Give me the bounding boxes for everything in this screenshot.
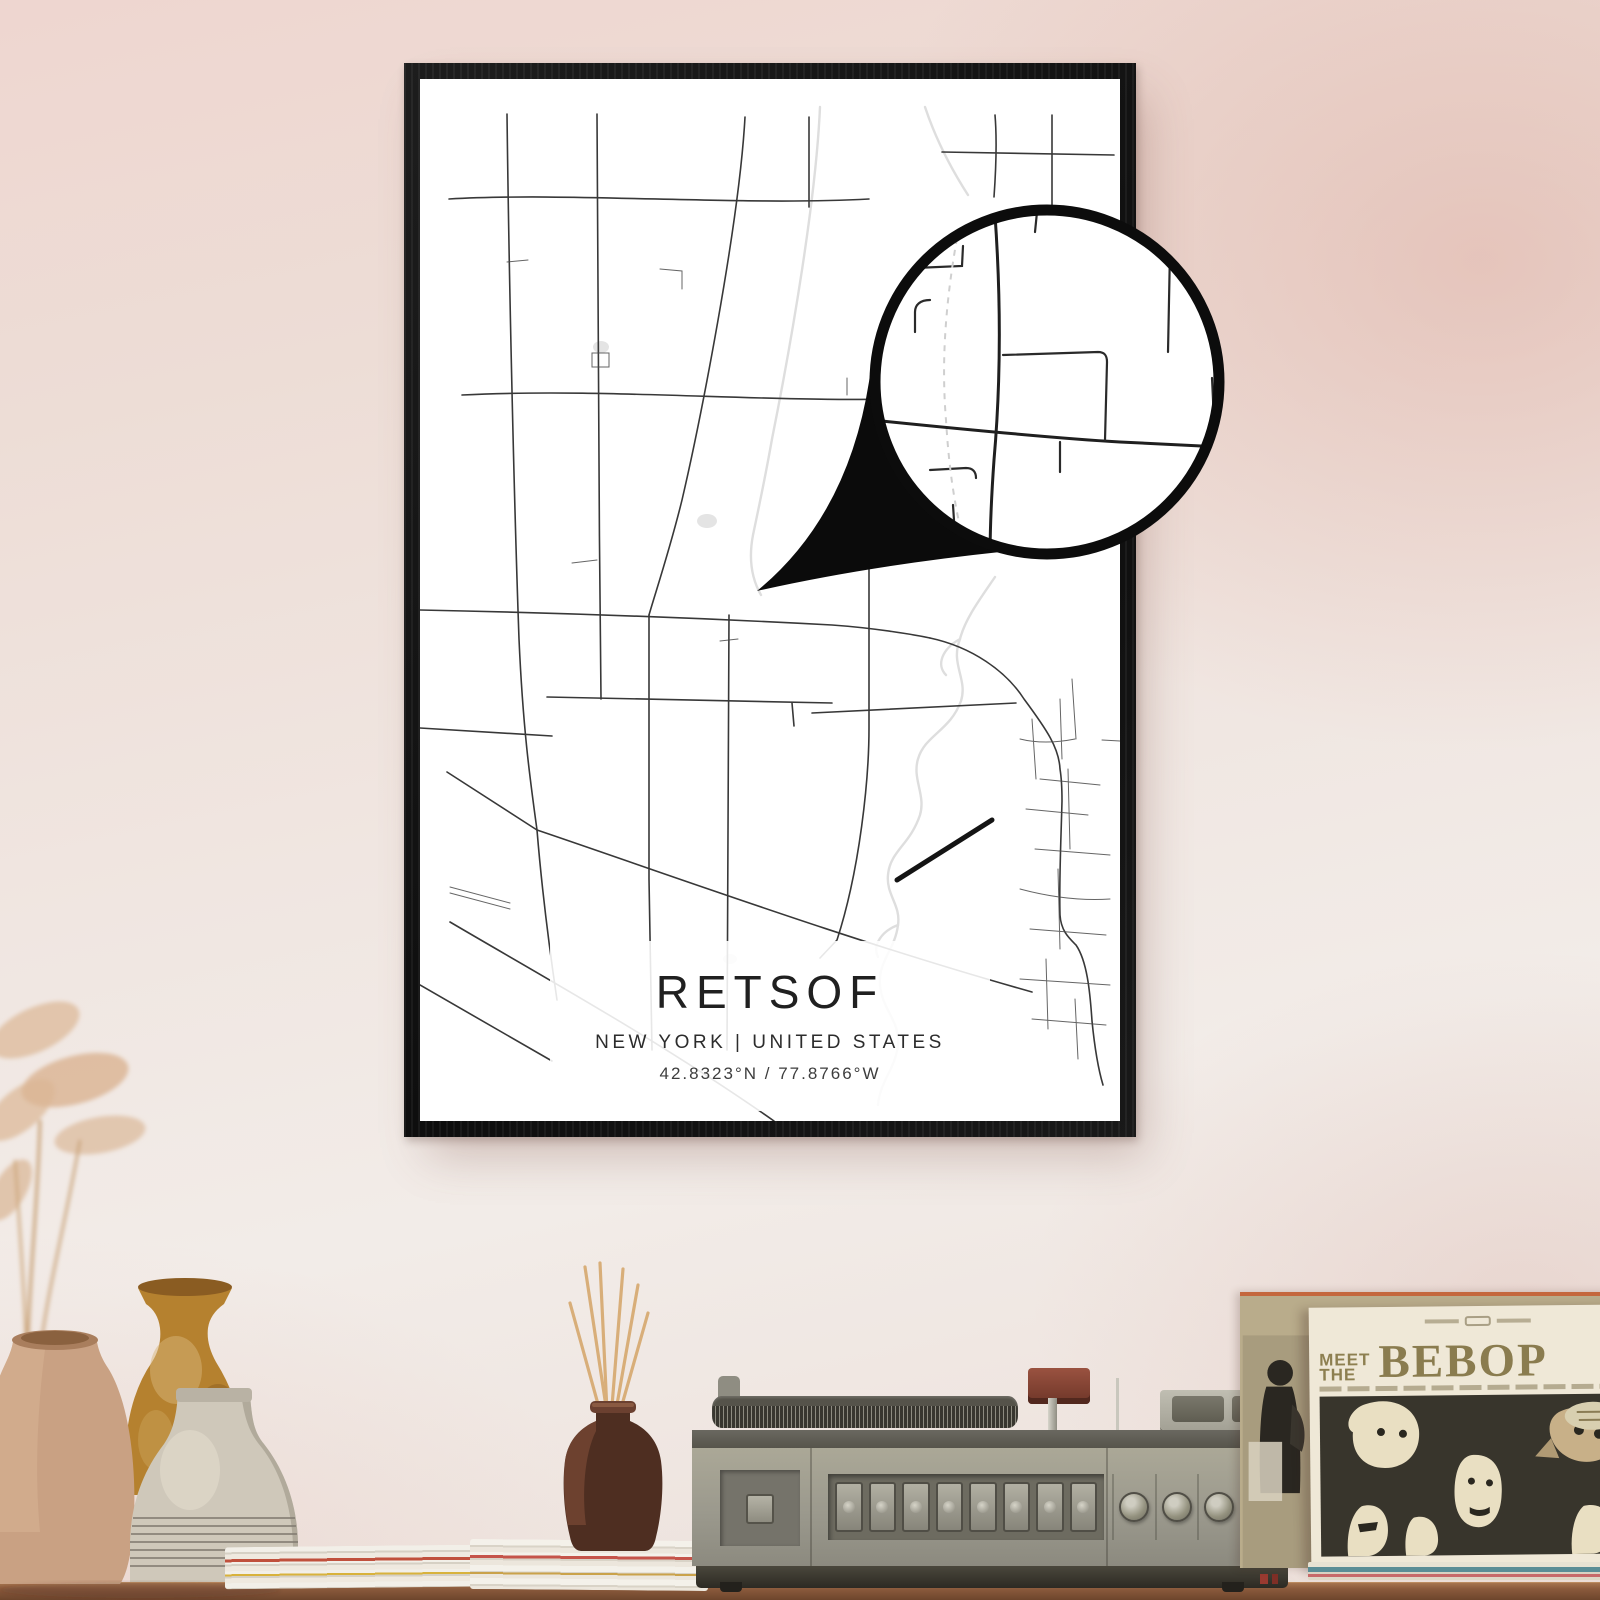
power-button xyxy=(746,1494,774,1524)
poster-paper: RETSOF NEW YORK | UNITED STATES 42.8323°… xyxy=(420,79,1120,1121)
control-knob xyxy=(1119,1492,1149,1522)
panel-seam xyxy=(1106,1448,1108,1566)
preset-button xyxy=(1070,1482,1098,1532)
poster-frame: RETSOF NEW YORK | UNITED STATES 42.8323°… xyxy=(404,63,1136,1137)
turntable-platter xyxy=(712,1396,1018,1428)
pampas-grass xyxy=(0,990,148,1338)
knob-slot xyxy=(1197,1474,1240,1540)
button-cap xyxy=(977,1501,989,1513)
preset-button xyxy=(869,1482,897,1532)
record-player xyxy=(692,1368,1292,1590)
note-dash xyxy=(1497,1318,1531,1322)
room-scene: RETSOF NEW YORK | UNITED STATES 42.8323°… xyxy=(0,0,1600,1600)
control-knob xyxy=(1204,1492,1234,1522)
tonearm-rod xyxy=(1116,1378,1119,1430)
album-art xyxy=(1320,1393,1600,1556)
button-cap xyxy=(843,1501,855,1513)
map-minor-roads xyxy=(450,260,1120,1059)
tonearm-cartridge xyxy=(1028,1368,1090,1404)
preset-button xyxy=(902,1482,930,1532)
album-title: BEBOP xyxy=(1378,1339,1548,1383)
stereo-chip-icon xyxy=(1465,1316,1491,1326)
poster-title: RETSOF xyxy=(420,965,1120,1019)
sleeve-top-note xyxy=(1319,1312,1600,1329)
diffuser-bottle xyxy=(564,1401,663,1551)
album-sleeve-bebop: MEET THE BEBOP xyxy=(1309,1304,1600,1570)
front-panel xyxy=(692,1448,1292,1566)
album-pretitle-line2: THE xyxy=(1319,1367,1370,1383)
button-cap xyxy=(1077,1501,1089,1513)
preset-button xyxy=(969,1482,997,1532)
album-art-faces xyxy=(1320,1393,1600,1556)
album-group: MEET THE BEBOP xyxy=(1238,1288,1600,1596)
button-cap xyxy=(876,1501,888,1513)
clay-jug xyxy=(0,1330,134,1584)
player-foot xyxy=(720,1582,742,1592)
preset-button xyxy=(835,1482,863,1532)
knob-slot xyxy=(1112,1474,1155,1540)
map-rail-segment xyxy=(897,820,992,880)
knob-slot xyxy=(1155,1474,1198,1540)
button-cap xyxy=(910,1501,922,1513)
poster-coordinates: 42.8323°N / 77.8766°W xyxy=(420,1064,1120,1084)
button-cap xyxy=(1010,1501,1022,1513)
preset-button-row xyxy=(828,1474,1104,1540)
record-stack-right xyxy=(1308,1562,1600,1580)
magazine-stack-left xyxy=(225,1545,477,1590)
poster-text-block: RETSOF NEW YORK | UNITED STATES 42.8323°… xyxy=(420,965,1120,1084)
vase-group xyxy=(0,970,320,1600)
button-cap xyxy=(943,1501,955,1513)
album-pretitle: MEET THE xyxy=(1319,1352,1371,1384)
power-button-block xyxy=(720,1470,800,1546)
deck-strip xyxy=(692,1430,1292,1448)
preset-button xyxy=(936,1482,964,1532)
control-knob xyxy=(1162,1492,1192,1522)
reed-diffuser xyxy=(552,1255,672,1555)
player-base xyxy=(696,1566,1288,1588)
preset-button xyxy=(1036,1482,1064,1532)
poster-subtitle: NEW YORK | UNITED STATES xyxy=(420,1032,1120,1054)
button-cap xyxy=(1044,1501,1056,1513)
note-dash xyxy=(1425,1319,1459,1323)
album-title-row: MEET THE BEBOP xyxy=(1319,1328,1600,1383)
cassette-window xyxy=(1172,1396,1224,1422)
preset-button xyxy=(1003,1482,1031,1532)
map-ponds xyxy=(593,341,737,964)
panel-seam xyxy=(810,1448,812,1566)
tonearm-post xyxy=(1048,1398,1057,1432)
